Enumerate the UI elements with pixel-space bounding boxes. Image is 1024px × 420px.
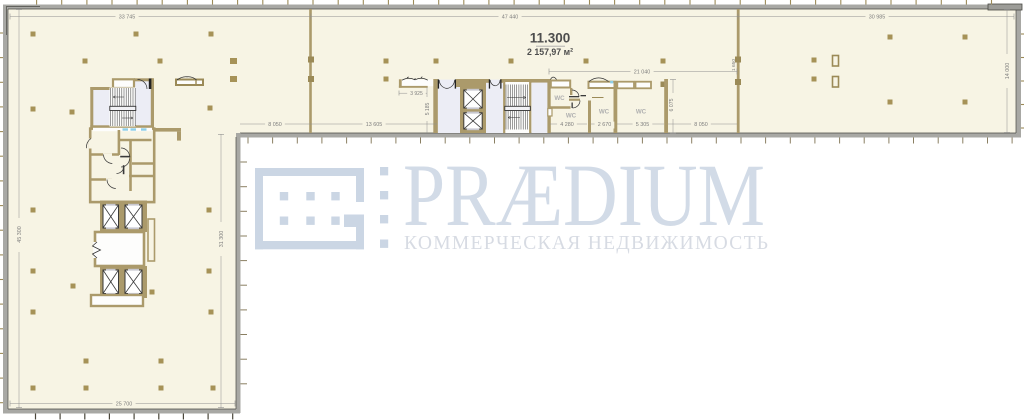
svg-text:3 925: 3 925 [410,91,423,97]
svg-text:WC: WC [636,109,647,116]
svg-text:PRÆDIUM: PRÆDIUM [403,146,765,245]
svg-text:1 650: 1 650 [731,59,737,71]
svg-text:47 440: 47 440 [502,15,519,21]
svg-text:WC: WC [566,113,577,120]
svg-text:21 040: 21 040 [634,70,651,76]
svg-text:8 050: 8 050 [268,122,282,128]
svg-text:КОММЕРЧЕСКАЯ НЕДВИЖИМОСТЬ: КОММЕРЧЕСКАЯ НЕДВИЖИМОСТЬ [404,233,768,254]
svg-text:6 075: 6 075 [669,98,675,111]
svg-text:5 185: 5 185 [425,103,431,116]
svg-text:8 050: 8 050 [694,122,708,128]
svg-text:13 605: 13 605 [366,122,383,128]
svg-text:WC: WC [554,95,565,102]
svg-text:11.300: 11.300 [530,31,571,46]
svg-text:2 157,97 м²: 2 157,97 м² [527,47,573,58]
svg-text:25 700: 25 700 [116,402,133,408]
svg-text:33 745: 33 745 [119,15,136,21]
svg-text:31 300: 31 300 [219,231,225,248]
svg-text:5 305: 5 305 [636,122,650,128]
svg-text:WC: WC [599,109,610,116]
svg-text:30 985: 30 985 [869,15,886,21]
svg-text:4 280: 4 280 [560,122,574,128]
svg-text:14 000: 14 000 [1005,63,1011,80]
svg-text:45 300: 45 300 [17,226,23,243]
svg-text:2 670: 2 670 [598,122,612,128]
